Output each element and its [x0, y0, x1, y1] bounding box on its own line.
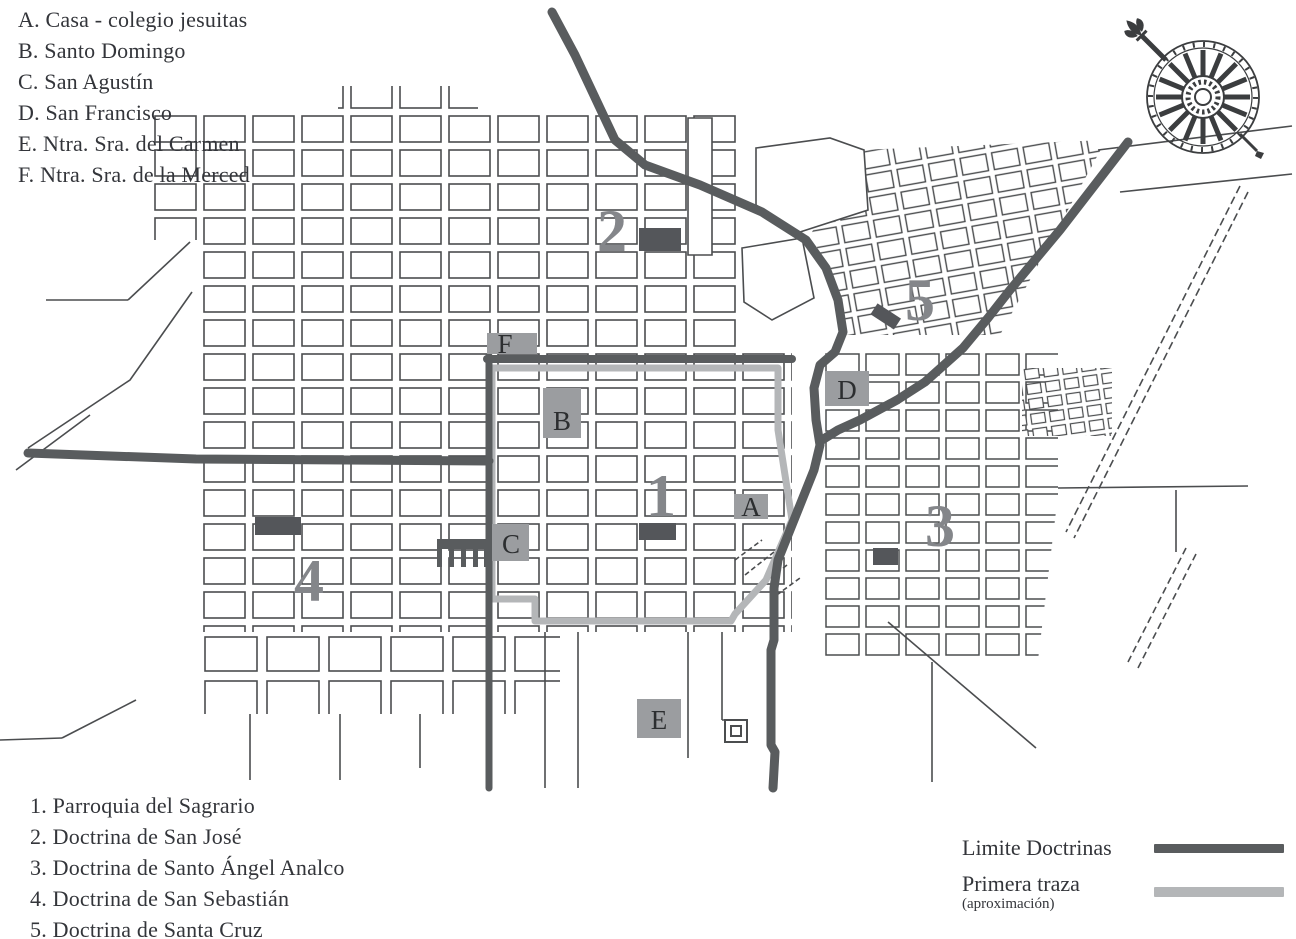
- el-alto-small-blocks: [1022, 368, 1112, 436]
- numeral-1: 1: [646, 463, 676, 529]
- legend-item: 2. Doctrina de San José: [30, 821, 345, 852]
- compass-rose-icon: [1119, 13, 1264, 159]
- church-label-e: E: [651, 705, 668, 735]
- church-label-f: F: [497, 329, 512, 359]
- map-figure: F B C A D E 1 2 3 4 5: [0, 0, 1296, 939]
- legend-row-primera-traza: Primera traza (aproximación): [962, 872, 1284, 912]
- limite-doctrinas-swatch: [1154, 844, 1284, 853]
- church-label-a: A: [741, 492, 761, 522]
- primera-traza-labels: Primera traza (aproximación): [962, 872, 1080, 912]
- legend-item: E. Ntra. Sra. del Carmen: [18, 128, 250, 159]
- south-west-district: [200, 632, 560, 714]
- square-in-square-symbol: [725, 720, 747, 742]
- legend-item: F. Ntra. Sra. de la Merced: [18, 159, 250, 190]
- legend-item: C. San Agustín: [18, 66, 250, 97]
- legend-doctrinas: 1. Parroquia del Sagrario 2. Doctrina de…: [30, 790, 345, 939]
- limite-doctrinas-label: Limite Doctrinas: [962, 836, 1112, 860]
- numeral-4: 4: [294, 548, 324, 614]
- primera-traza-label: Primera traza: [962, 872, 1080, 896]
- church-label-b: B: [553, 406, 571, 436]
- legend-item: D. San Francisco: [18, 97, 250, 128]
- legend-item: 4. Doctrina de San Sebastián: [30, 883, 345, 914]
- legend-item: 1. Parroquia del Sagrario: [30, 790, 345, 821]
- legend-item: B. Santo Domingo: [18, 35, 250, 66]
- legend-line-types: Limite Doctrinas Primera traza (aproxima…: [962, 836, 1284, 924]
- numeral-2: 2: [597, 198, 627, 264]
- site-marker-analco: [873, 548, 898, 565]
- legend-churches: A. Casa - colegio jesuitas B. Santo Domi…: [18, 4, 250, 190]
- church-label-d: D: [837, 375, 857, 405]
- site-marker-san-jose: [639, 228, 681, 251]
- primera-traza-swatch: [1154, 887, 1284, 897]
- site-marker-san-sebastian: [255, 517, 301, 535]
- primera-traza-sublabel: (aproximación): [962, 896, 1080, 912]
- church-label-c: C: [502, 529, 520, 559]
- legend-row-limite: Limite Doctrinas: [962, 836, 1284, 860]
- numeral-3: 3: [925, 493, 955, 559]
- legend-item: 3. Doctrina de Santo Ángel Analco: [30, 852, 345, 883]
- legend-item: A. Casa - colegio jesuitas: [18, 4, 250, 35]
- legend-item: 5. Doctrina de Santa Cruz: [30, 914, 345, 939]
- numeral-5: 5: [905, 267, 935, 333]
